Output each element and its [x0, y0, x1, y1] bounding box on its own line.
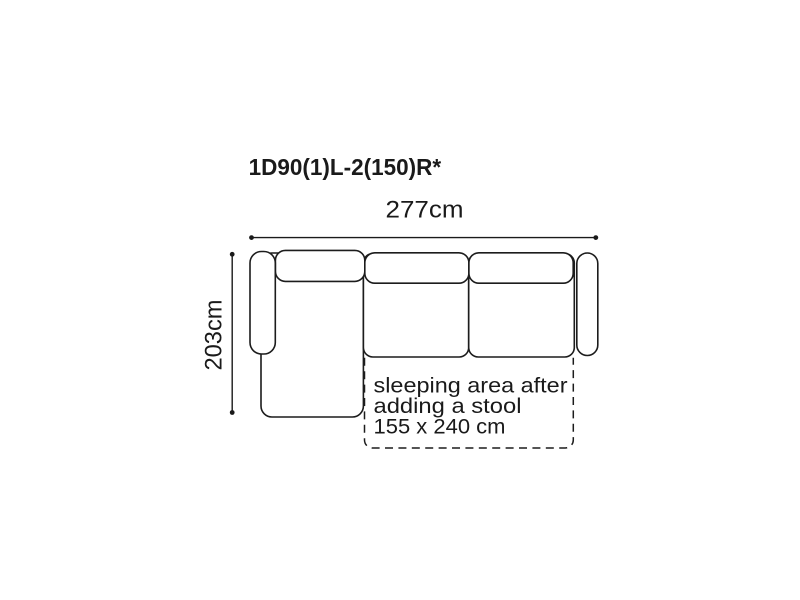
svg-text:1D90(1)L-2(150)R*: 1D90(1)L-2(150)R*	[249, 154, 442, 180]
svg-text:155 x 240 cm: 155 x 240 cm	[374, 414, 506, 438]
svg-text:277cm: 277cm	[386, 197, 464, 224]
svg-text:203cm: 203cm	[201, 300, 228, 371]
